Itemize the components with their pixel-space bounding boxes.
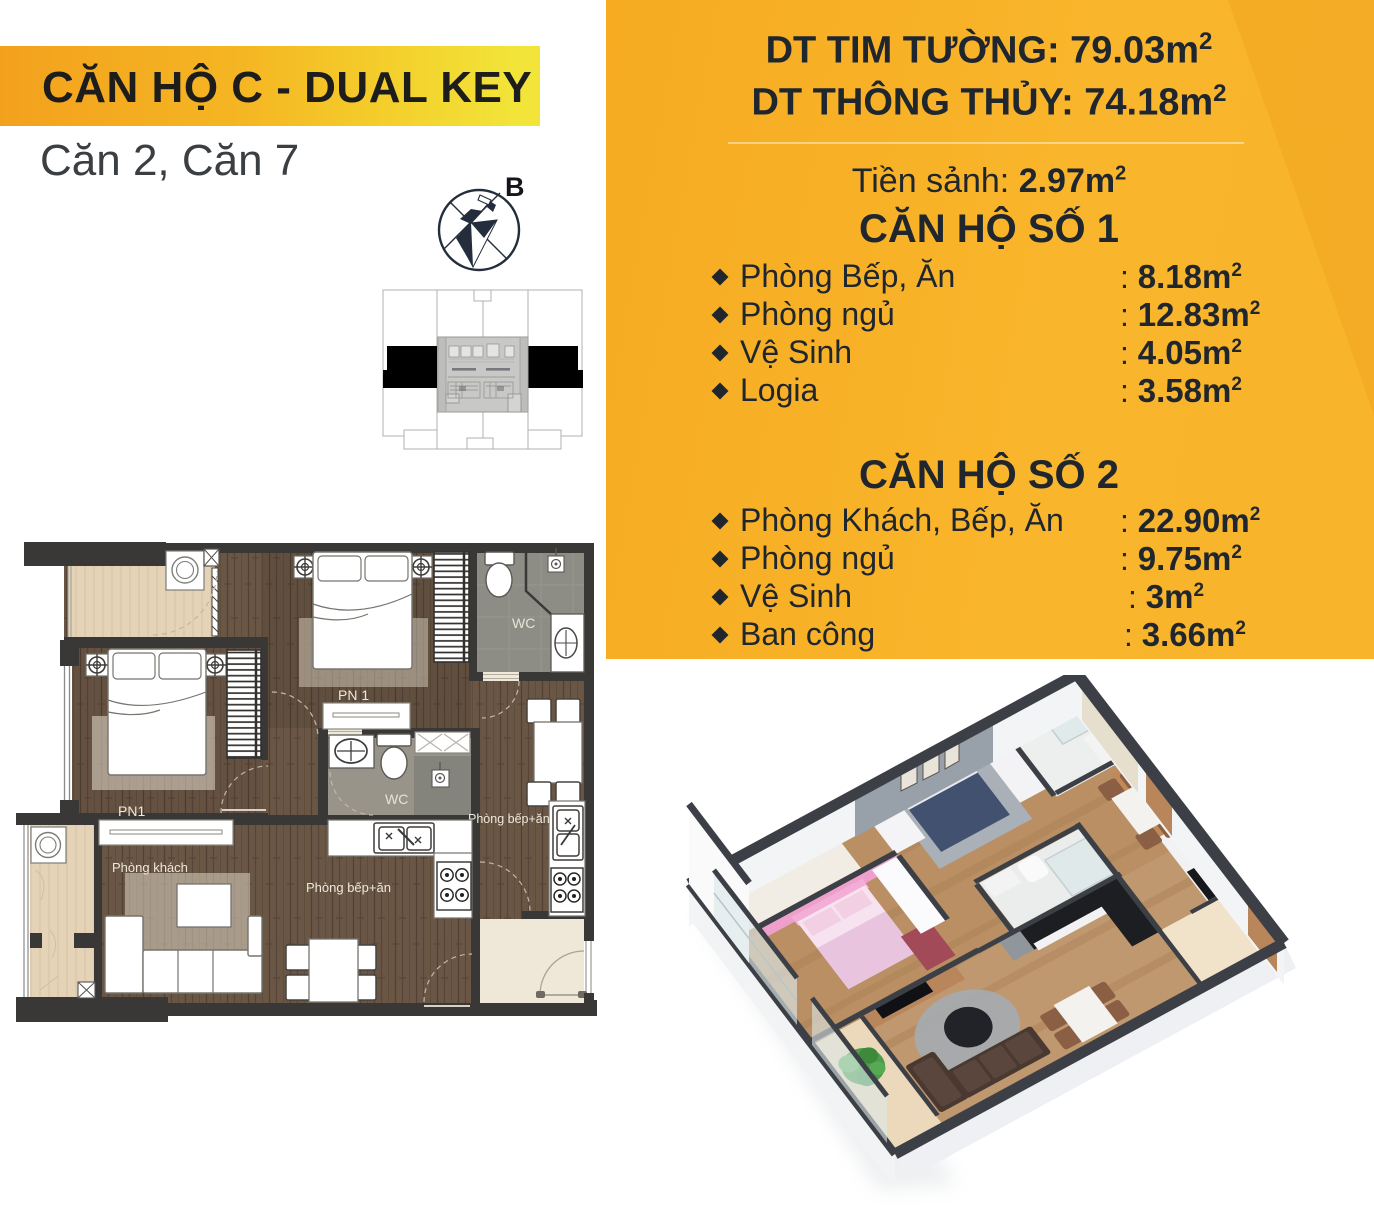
- svg-text:WC: WC: [385, 791, 408, 807]
- svg-text:PN1: PN1: [118, 803, 145, 819]
- svg-text:PN 1: PN 1: [338, 687, 369, 703]
- svg-text:Phòng khách: Phòng khách: [112, 860, 188, 875]
- svg-text:B: B: [505, 172, 525, 202]
- svg-text:Phòng bếp+ăn: Phòng bếp+ăn: [306, 880, 391, 895]
- svg-text:WC: WC: [512, 615, 535, 631]
- svg-text:Phòng bếp+ăn: Phòng bếp+ăn: [468, 812, 550, 826]
